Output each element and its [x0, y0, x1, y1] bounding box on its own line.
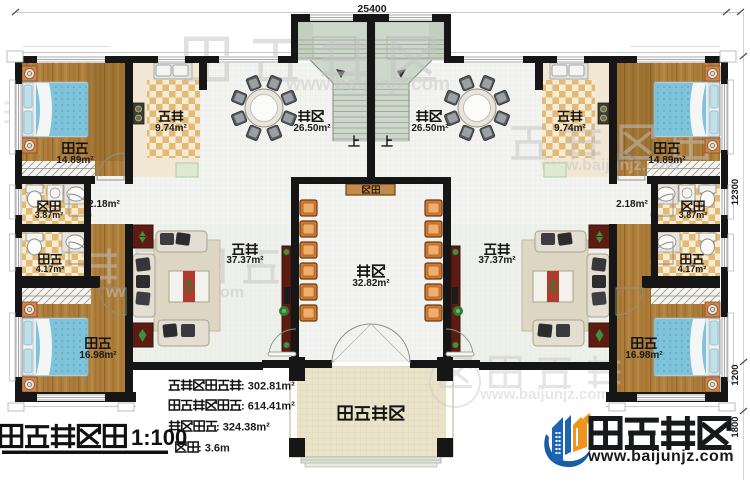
svg-text:1800: 1800	[730, 416, 741, 437]
svg-text:9.74m²: 9.74m²	[155, 123, 187, 134]
svg-text:37.37m²: 37.37m²	[478, 255, 516, 266]
svg-text:: 302.81m²: : 302.81m²	[241, 381, 295, 393]
svg-text:25400: 25400	[357, 3, 386, 15]
svg-text:37.37m²: 37.37m²	[226, 255, 264, 266]
svg-text:: 324.38m²: : 324.38m²	[216, 422, 270, 434]
svg-text:2.18m²: 2.18m²	[88, 199, 120, 210]
svg-text:16.98m²: 16.98m²	[79, 350, 117, 361]
svg-text:www.baijunjz.com: www.baijunjz.com	[587, 448, 734, 465]
svg-text:: 3.6m: : 3.6m	[198, 443, 230, 455]
svg-text:16.98m²: 16.98m²	[625, 350, 663, 361]
svg-text:www.baijunjz.com: www.baijunjz.com	[479, 386, 609, 403]
svg-text:12300: 12300	[730, 179, 741, 205]
svg-text:26.50m²: 26.50m²	[293, 123, 331, 134]
svg-text:2.18m²: 2.18m²	[616, 199, 648, 210]
svg-text:9.74m²: 9.74m²	[554, 123, 586, 134]
svg-text:14.89m²: 14.89m²	[648, 155, 686, 166]
svg-text:4.17m²: 4.17m²	[36, 264, 65, 274]
svg-text:14.89m²: 14.89m²	[56, 155, 94, 166]
svg-text:1200: 1200	[730, 364, 741, 385]
svg-text:26.50m²: 26.50m²	[411, 123, 449, 134]
svg-text:3.87m²: 3.87m²	[679, 210, 708, 220]
svg-text:3.87m²: 3.87m²	[35, 210, 64, 220]
svg-text:: 614.41m²: : 614.41m²	[241, 401, 295, 413]
svg-text:32.82m²: 32.82m²	[352, 278, 390, 289]
svg-text:4.17m²: 4.17m²	[678, 264, 707, 274]
